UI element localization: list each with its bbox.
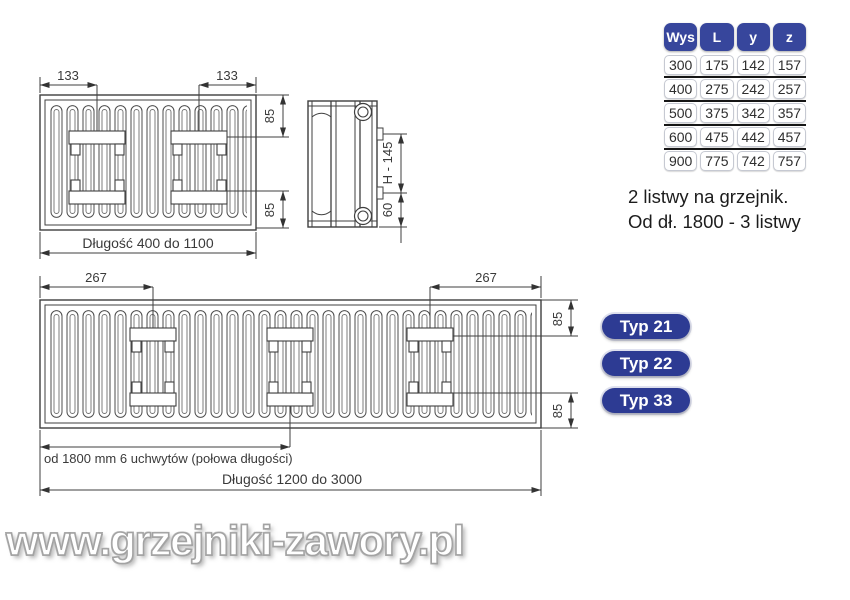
table-cell: 742: [737, 151, 770, 171]
table-cell: 400: [664, 79, 697, 99]
site-watermark: www.grzejniki-zawory.pl: [6, 517, 464, 565]
dim-label-brackets-note: od 1800 mm 6 uchwytów (połowa długości): [44, 451, 293, 466]
dim-label-height: H - 145: [380, 142, 395, 185]
table-row: 500 375 342 357: [664, 100, 806, 124]
large-radiator-drawing: 267 267 85 85 od 1800 mm 6 uchwytów (poł…: [40, 270, 578, 496]
table-cell: 342: [737, 103, 770, 123]
spec-table-header-cell: L: [700, 23, 733, 51]
dim-label-length-small: Długość 400 do 1100: [82, 235, 213, 251]
table-cell: 275: [700, 79, 733, 99]
table-cell: 157: [773, 55, 806, 75]
listwy-note-line1: 2 listwy na grzejnik.: [628, 184, 801, 209]
type-button-list: Typ 21 Typ 22 Typ 33: [602, 314, 690, 413]
table-row: 300 175 142 157: [664, 54, 806, 76]
spec-table-header-cell: Wys: [664, 23, 697, 51]
table-cell: 600: [664, 127, 697, 147]
dim-label-top-margin-large: 85: [550, 312, 565, 326]
table-cell: 242: [737, 79, 770, 99]
dim-label-right-offset-large: 267: [475, 270, 497, 285]
side-view-drawing: H - 145 60: [308, 101, 407, 243]
dim-label-bottom-margin: 85: [262, 203, 277, 217]
table-cell: 357: [773, 103, 806, 123]
table-cell: 457: [773, 127, 806, 147]
dim-label-bottom-margin-large: 85: [550, 404, 565, 418]
table-cell: 900: [664, 151, 697, 171]
table-cell: 300: [664, 55, 697, 75]
type-21-button[interactable]: Typ 21: [602, 314, 690, 339]
dim-label-right-offset: 133: [216, 68, 238, 83]
table-row: 400 275 242 257: [664, 76, 806, 100]
table-cell: 757: [773, 151, 806, 171]
dim-label-top-margin: 85: [262, 109, 277, 123]
table-cell: 375: [700, 103, 733, 123]
table-row: 600 475 442 457: [664, 124, 806, 148]
spec-table-header-cell: y: [737, 23, 770, 51]
table-cell: 257: [773, 79, 806, 99]
dim-label-bottom-height: 60: [380, 203, 395, 217]
listwy-note: 2 listwy na grzejnik. Od dł. 1800 - 3 li…: [628, 184, 801, 234]
table-cell: 175: [700, 55, 733, 75]
table-cell: 500: [664, 103, 697, 123]
spec-table-header-row: Wys L y z: [664, 23, 806, 51]
table-cell: 475: [700, 127, 733, 147]
listwy-note-line2: Od dł. 1800 - 3 listwy: [628, 209, 801, 234]
spec-table-body: 300 175 142 157 400 275 242 257 500 375 …: [664, 54, 806, 172]
spec-table: Wys L y z 300 175 142 157 400 275 242 25…: [664, 23, 806, 172]
dim-label-length-large: Długość 1200 do 3000: [222, 471, 362, 487]
table-cell: 442: [737, 127, 770, 147]
table-cell: 142: [737, 55, 770, 75]
dim-label-left-offset: 133: [57, 68, 79, 83]
type-33-button[interactable]: Typ 33: [602, 388, 690, 413]
spec-table-header-cell: z: [773, 23, 806, 51]
small-radiator-drawing: 133 133 85 85 Długość 400 do 1100: [40, 68, 289, 259]
dim-label-left-offset-large: 267: [85, 270, 107, 285]
table-cell: 775: [700, 151, 733, 171]
table-row: 900 775 742 757: [664, 148, 806, 172]
type-22-button[interactable]: Typ 22: [602, 351, 690, 376]
